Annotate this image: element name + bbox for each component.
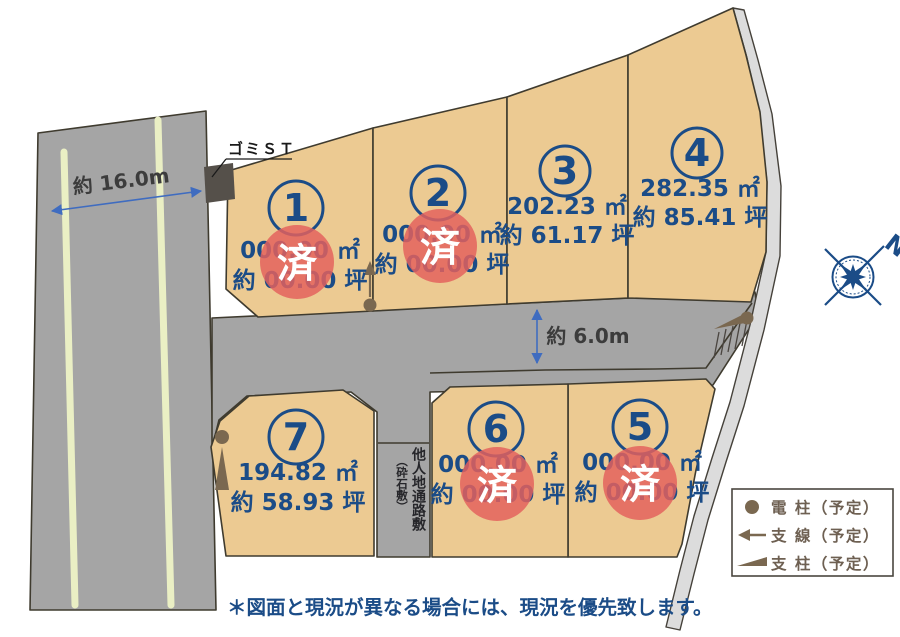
lot-2-number: 2: [425, 171, 451, 215]
lot-7-area-tsubo: 約 58.93 坪: [231, 489, 366, 516]
lot-3-number: 3: [552, 149, 578, 193]
lot-7-area-m2: 194.82 ㎡: [238, 459, 358, 486]
lot-6-sold-text: 済: [477, 463, 518, 509]
lot-3-area-tsubo: 約 61.17 坪: [500, 222, 635, 249]
legend-pole-icon: [745, 500, 759, 514]
lot-2-sold-text: 済: [420, 225, 461, 271]
lot-5-sold-text: 済: [620, 462, 661, 508]
passage-label-sub: （砕石敷）: [394, 447, 409, 559]
dim-6m-label: 約 6.0m: [546, 324, 629, 348]
lot-4-number: 4: [684, 131, 710, 175]
lot-4-area-tsubo: 約 85.41 坪: [633, 204, 768, 231]
lot-7-number: 7: [283, 415, 309, 459]
compass-n-label: N: [879, 228, 900, 262]
note-text: ＊図面と現況が異なる場合には、現況を優先致します。: [227, 596, 713, 619]
lot-3-area-m2: 202.23 ㎡: [507, 193, 627, 220]
legend-pole-label: 電 柱（予定）: [771, 498, 880, 517]
compass-rose: [825, 246, 884, 305]
garbage-station-box: [204, 163, 235, 203]
passage-label-main: 他人地通路敷: [409, 447, 426, 559]
lot-5-number: 5: [627, 405, 653, 449]
legend-box: 電 柱（予定） 支 線（予定） 支 柱（予定）: [732, 489, 893, 576]
legend-strut-label: 支 柱（予定）: [770, 554, 880, 573]
lot-map-canvas: ゴミＳＴ 約 16.0m 約 6.0m 1 000.00 ㎡ 約 00.00 坪…: [0, 0, 900, 637]
legend-wire-label: 支 線（予定）: [770, 526, 880, 545]
garbage-station-label: ゴミＳＴ: [228, 140, 296, 158]
lot-map-svg: ゴミＳＴ 約 16.0m 約 6.0m 1 000.00 ㎡ 約 00.00 坪…: [0, 0, 900, 637]
lot-6-number: 6: [483, 407, 509, 451]
passage-label: 他人地通路敷 （砕石敷）: [386, 447, 426, 559]
lot-4-area-m2: 282.35 ㎡: [640, 175, 760, 202]
lot-1-number: 1: [283, 186, 309, 230]
lot-1-sold-text: 済: [277, 241, 318, 287]
